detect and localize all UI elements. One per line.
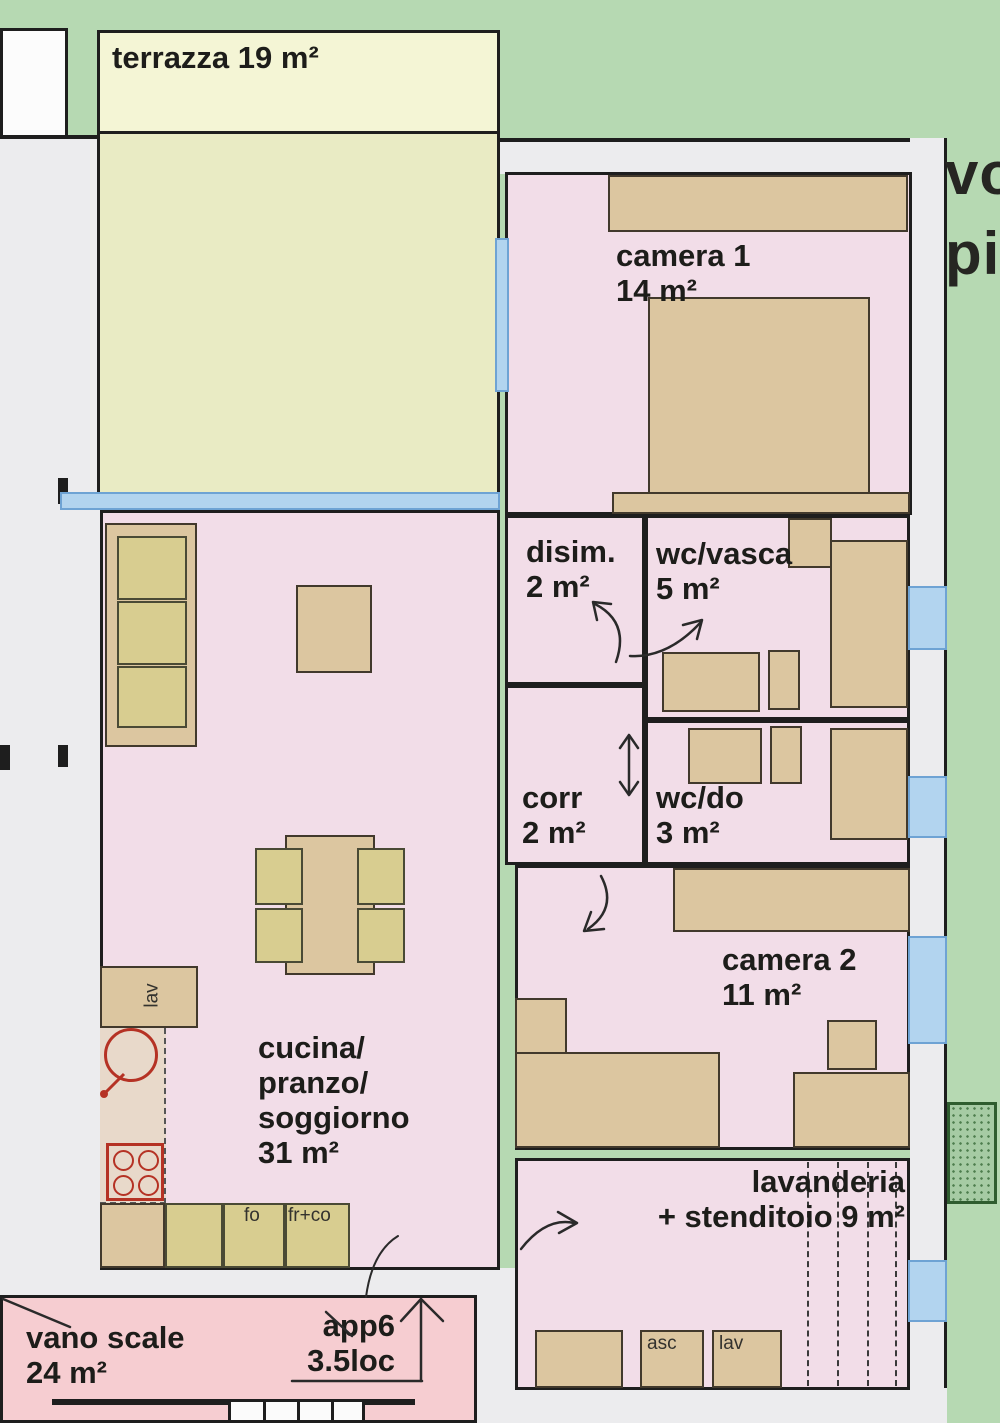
desk-camera-2 bbox=[793, 1072, 910, 1148]
label-line: vano scale bbox=[26, 1320, 185, 1355]
fixture-wc-vasca bbox=[768, 650, 800, 710]
stairs bbox=[228, 1399, 365, 1423]
landing-strip-bottom bbox=[95, 1268, 480, 1298]
window-right bbox=[908, 1260, 947, 1322]
label-washer: lav bbox=[719, 1334, 743, 1353]
burner-icon bbox=[113, 1150, 134, 1171]
label-camera-2: camera 2 11 m² bbox=[722, 942, 856, 1012]
side-table bbox=[296, 585, 372, 673]
edge-text-line-1: vo bbox=[945, 144, 1000, 204]
label-line: 11 m² bbox=[722, 977, 856, 1012]
chair bbox=[255, 848, 303, 905]
chair bbox=[255, 908, 303, 963]
chair bbox=[357, 908, 405, 963]
label-fridge: fr+co bbox=[288, 1206, 331, 1225]
label-line: wc/do bbox=[656, 780, 744, 815]
bed-camera-2 bbox=[515, 1052, 720, 1148]
floor-plan: terrazza 19 m² camera 1 14 m² disim. 2 m… bbox=[0, 0, 1000, 1423]
wardrobe-camera-2 bbox=[673, 868, 910, 932]
label-wc-vasca: wc/vasca 5 m² bbox=[656, 536, 792, 606]
label-line: 31 m² bbox=[258, 1135, 410, 1170]
label-line: camera 1 bbox=[616, 238, 750, 273]
label-camera-1: camera 1 14 m² bbox=[616, 238, 750, 308]
burner-icon bbox=[113, 1175, 134, 1196]
counter-block bbox=[100, 1203, 165, 1268]
label-line: pranzo/ bbox=[258, 1065, 410, 1100]
fixture-wc-vasca bbox=[788, 518, 832, 568]
wardrobe-camera-1 bbox=[608, 175, 908, 232]
nightstand-camera-2 bbox=[827, 1020, 877, 1070]
label-corridoio: corr 2 m² bbox=[522, 780, 586, 850]
label-oven: fo bbox=[244, 1206, 260, 1225]
label-terrazza: terrazza 19 m² bbox=[112, 40, 319, 75]
label-vano-scale: vano scale 24 m² bbox=[26, 1320, 185, 1390]
burner-icon bbox=[138, 1150, 159, 1171]
burner-icon bbox=[138, 1175, 159, 1196]
label-line: 2 m² bbox=[522, 815, 586, 850]
fixture-wc-vasca bbox=[830, 540, 908, 708]
window-right bbox=[908, 936, 947, 1044]
wall-tick bbox=[58, 745, 68, 767]
bed-camera-1 bbox=[648, 297, 870, 495]
sofa-cushion bbox=[117, 666, 187, 728]
label-apartment: app6 3.5loc bbox=[285, 1308, 395, 1378]
wall-tick bbox=[0, 745, 10, 770]
cooktop-icon bbox=[106, 1143, 164, 1201]
label-line: wc/vasca bbox=[656, 536, 792, 571]
window-right bbox=[908, 586, 947, 650]
stair-step bbox=[331, 1402, 334, 1420]
fixture-wc-doccia bbox=[688, 728, 762, 784]
label-wc-doccia: wc/do 3 m² bbox=[656, 780, 744, 850]
sofa-cushion bbox=[117, 536, 187, 600]
label-line: + stenditoio 9 m² bbox=[545, 1199, 905, 1234]
window-right bbox=[908, 776, 947, 838]
planter bbox=[947, 1102, 997, 1204]
label-line: 14 m² bbox=[616, 273, 750, 308]
stair-step bbox=[263, 1402, 266, 1420]
label-line: disim. bbox=[526, 534, 616, 569]
fixture-wc-doccia bbox=[770, 726, 802, 784]
bathtub bbox=[662, 652, 760, 712]
label-line: app6 bbox=[285, 1308, 395, 1343]
outer-wall-top-right bbox=[497, 138, 912, 174]
label-line: 5 m² bbox=[656, 571, 792, 606]
chair bbox=[357, 848, 405, 905]
label-line: 24 m² bbox=[26, 1355, 185, 1390]
outer-niche-top-left bbox=[0, 28, 68, 138]
label-disimpegno: disim. 2 m² bbox=[526, 534, 616, 604]
label-elevator: asc bbox=[647, 1334, 677, 1353]
label-lavanderia: lavanderia + stenditoio 9 m² bbox=[545, 1164, 905, 1234]
laundry-cabinet bbox=[535, 1330, 623, 1388]
sofa-cushion bbox=[117, 601, 187, 665]
window-camera-1 bbox=[495, 238, 509, 392]
label-line: corr bbox=[522, 780, 586, 815]
outer-wall-left bbox=[0, 135, 100, 1295]
outer-wall-right bbox=[910, 138, 947, 1390]
label-line: lavanderia bbox=[545, 1164, 905, 1199]
room-terrazza-floor bbox=[97, 134, 500, 492]
shower bbox=[830, 728, 908, 840]
label-line: camera 2 bbox=[722, 942, 856, 977]
window-terrace bbox=[60, 492, 500, 510]
label-line: 3 m² bbox=[656, 815, 744, 850]
cabinet-camera-1 bbox=[612, 492, 910, 514]
counter-block bbox=[165, 1203, 223, 1268]
label-line: 3.5loc bbox=[285, 1343, 395, 1378]
label-line: cucina/ bbox=[258, 1030, 410, 1065]
label-line: 2 m² bbox=[526, 569, 616, 604]
edge-text-line-2: pia bbox=[945, 224, 1000, 284]
sink-icon bbox=[104, 1028, 158, 1082]
label-cucina: cucina/ pranzo/ soggiorno 31 m² bbox=[258, 1030, 410, 1170]
outer-strip-below-lavanderia bbox=[515, 1388, 947, 1423]
stair-step bbox=[297, 1402, 300, 1420]
label-sink: lav bbox=[143, 968, 162, 1024]
cabinet-camera-2 bbox=[515, 998, 567, 1054]
label-line: soggiorno bbox=[258, 1100, 410, 1135]
landing-strip-bottom-right bbox=[477, 1268, 515, 1423]
